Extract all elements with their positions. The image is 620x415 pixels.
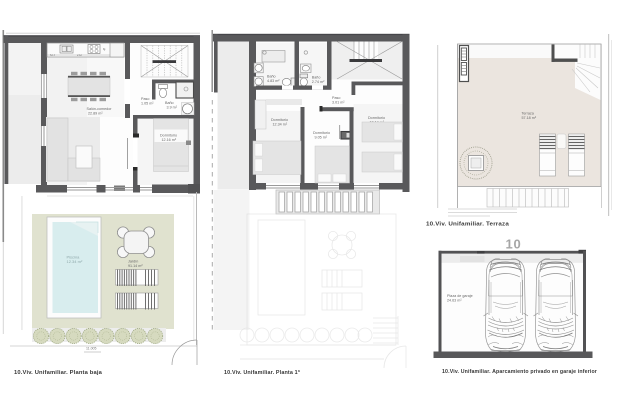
svg-text:10.Viv. Unifamiliar. Planta 1ª: 10.Viv. Unifamiliar. Planta 1ª — [224, 370, 300, 376]
svg-text:h.t.l: h.t.l — [50, 53, 55, 57]
svg-text:24.63 m²: 24.63 m² — [447, 299, 462, 303]
svg-text:10.Viv. Unifamiliar. Planta ba: 10.Viv. Unifamiliar. Planta baja — [14, 370, 102, 376]
svg-text:1.05 m²: 1.05 m² — [141, 102, 154, 106]
svg-text:Terraza: Terraza — [522, 112, 535, 116]
svg-text:Paso: Paso — [332, 96, 340, 100]
svg-text:Dormitorio: Dormitorio — [271, 118, 288, 122]
svg-text:10.Viv. Unifamiliar. Terraza: 10.Viv. Unifamiliar. Terraza — [426, 222, 509, 228]
svg-text:3.01 m²: 3.01 m² — [332, 101, 345, 105]
svg-text:12.34 m²: 12.34 m² — [273, 123, 288, 127]
svg-text:11.005: 11.005 — [86, 347, 96, 351]
svg-text:10.Viv. Unifamiliar. Aparcamie: 10.Viv. Unifamiliar. Aparcamiento privad… — [442, 369, 597, 375]
svg-text:4.83 m²: 4.83 m² — [267, 79, 280, 83]
svg-text:91.14 m²: 91.14 m² — [128, 264, 143, 268]
svg-text:12.34 m²: 12.34 m² — [67, 259, 83, 264]
svg-text:10: 10 — [506, 237, 522, 252]
svg-text:v.t.c: v.t.c — [77, 53, 83, 57]
svg-text:Jardín: Jardín — [128, 260, 138, 264]
svg-text:Baño: Baño — [312, 76, 321, 80]
svg-text:2.74 m²: 2.74 m² — [312, 80, 325, 84]
svg-text:Baño: Baño — [165, 101, 174, 105]
svg-text:Dormitorio: Dormitorio — [368, 116, 385, 120]
svg-text:12.16 m²: 12.16 m² — [162, 138, 177, 142]
svg-text:3.9 m²: 3.9 m² — [167, 106, 178, 110]
svg-text:Paso: Paso — [141, 97, 149, 101]
svg-text:Dormitorio: Dormitorio — [313, 131, 330, 135]
svg-text:9.05 m²: 9.05 m² — [315, 136, 328, 140]
svg-text:Plaza de garaje: Plaza de garaje — [447, 294, 473, 298]
svg-text:Baño: Baño — [267, 75, 276, 79]
svg-text:Dormitorio: Dormitorio — [160, 134, 177, 138]
svg-text:22.89 m²: 22.89 m² — [88, 111, 103, 115]
svg-text:57.18 m²: 57.18 m² — [522, 116, 537, 120]
